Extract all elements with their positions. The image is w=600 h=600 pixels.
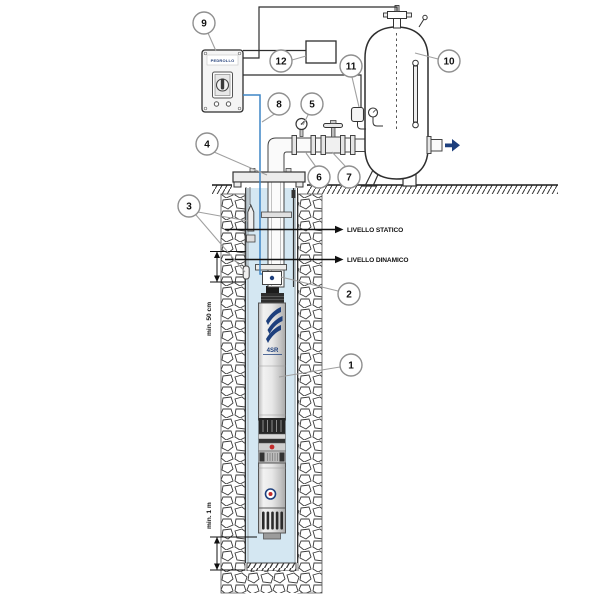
callout-10: 10 bbox=[438, 50, 460, 72]
control-panel: PEDROLLO bbox=[202, 50, 243, 112]
static-level-label: LIVELLO STATICO bbox=[347, 227, 403, 234]
callout-3: 3 bbox=[178, 195, 200, 217]
svg-text:10: 10 bbox=[443, 57, 455, 68]
dynamic-level-electrode bbox=[243, 266, 249, 279]
callout-7: 7 bbox=[338, 166, 360, 188]
level-sight-glass bbox=[413, 60, 419, 128]
pump-motor bbox=[259, 463, 286, 508]
callout-9: 9 bbox=[193, 12, 215, 34]
control-box bbox=[306, 41, 336, 63]
surface-pipework bbox=[268, 119, 365, 173]
callout-5: 5 bbox=[301, 93, 323, 115]
flow-arrow bbox=[445, 139, 460, 152]
callout-2: 2 bbox=[338, 283, 360, 305]
pump-red-marker bbox=[270, 445, 275, 450]
svg-text:1: 1 bbox=[348, 361, 354, 372]
diagram-canvas: 4SR bbox=[0, 0, 600, 600]
callout-6: 6 bbox=[308, 166, 330, 188]
callout-8: 8 bbox=[268, 93, 290, 115]
installation-diagram: 4SR bbox=[0, 0, 600, 600]
min-50cm-label: min. 50 cm bbox=[206, 302, 213, 336]
svg-text:6: 6 bbox=[316, 173, 322, 184]
pressure-tank bbox=[352, 6, 461, 187]
tank-top-fitting bbox=[384, 6, 428, 29]
svg-text:3: 3 bbox=[186, 202, 192, 213]
callout-12: 12 bbox=[270, 50, 292, 72]
panel-light-left bbox=[214, 102, 218, 106]
pump-model-label: 4SR bbox=[267, 348, 279, 354]
pipe-elbow bbox=[268, 138, 293, 172]
svg-text:2: 2 bbox=[346, 290, 352, 301]
panel-logo: PEDROLLO bbox=[211, 58, 235, 63]
gate-valve bbox=[321, 121, 345, 155]
callout-11: 11 bbox=[340, 55, 362, 77]
callout-1: 1 bbox=[340, 354, 362, 376]
svg-text:9: 9 bbox=[201, 19, 207, 30]
static-level-electrode bbox=[248, 205, 254, 231]
panel-light-right bbox=[226, 102, 230, 106]
min-1m-label: min. 1 m bbox=[206, 502, 213, 529]
svg-text:7: 7 bbox=[346, 173, 352, 184]
svg-text:4: 4 bbox=[204, 140, 210, 151]
svg-text:5: 5 bbox=[309, 100, 315, 111]
callout-4: 4 bbox=[196, 133, 218, 155]
pipe-clamp bbox=[262, 212, 292, 218]
dynamic-level-label: LIVELLO DINAMICO bbox=[347, 257, 408, 264]
svg-text:8: 8 bbox=[276, 100, 282, 111]
pressure-switch bbox=[352, 108, 367, 130]
submersible-pump: 4SR bbox=[259, 286, 286, 539]
svg-text:11: 11 bbox=[346, 62, 357, 73]
svg-text:12: 12 bbox=[275, 57, 287, 68]
